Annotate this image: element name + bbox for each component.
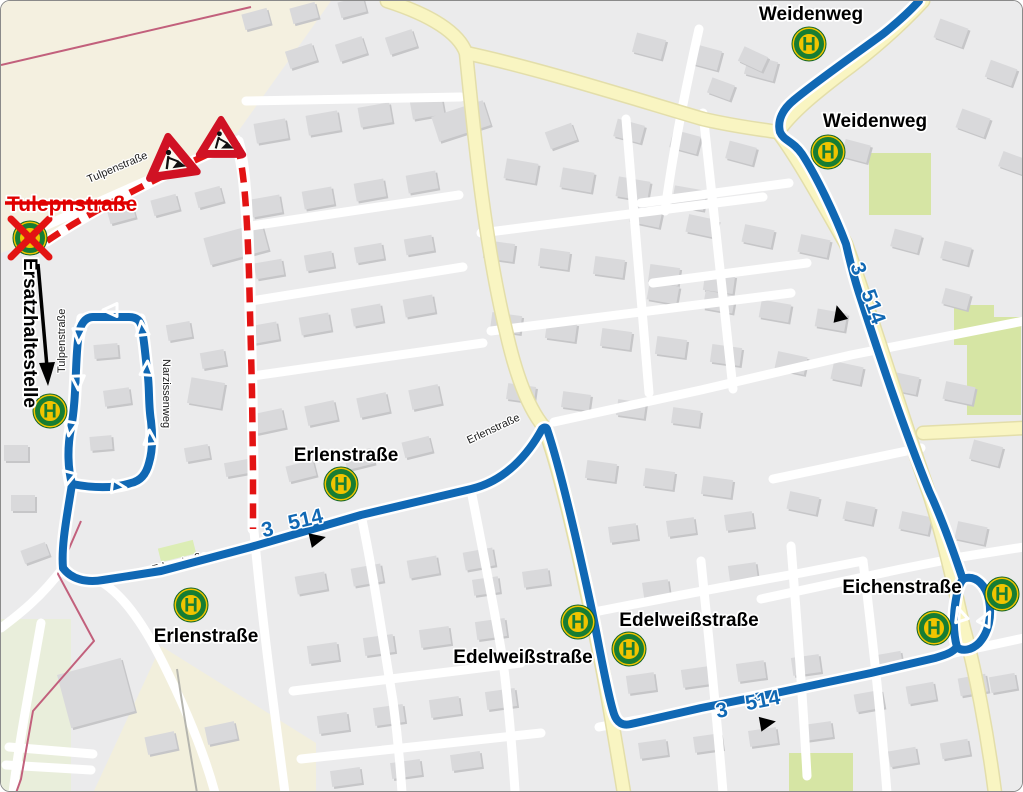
building — [89, 435, 112, 451]
stop-sign-letter: H — [927, 619, 941, 640]
stop-weidenweg-south: H — [811, 135, 845, 169]
stop-sign-letter: H — [821, 143, 835, 164]
stop-sign-letter: H — [571, 613, 585, 634]
stop-sign-letter: H — [802, 35, 816, 56]
stop-label-weidenweg-north: Weidenweg — [759, 4, 863, 25]
diversion-map: Tulpenstraße Tulpenstraße Narzissenweg E… — [0, 0, 1023, 792]
street-label-narzissenweg: Narzissenweg — [160, 359, 172, 428]
stop-cancelled-tulpenstrasse: H — [11, 219, 49, 257]
stop-sign-letter: H — [184, 596, 198, 617]
stop-sign-letter: H — [43, 402, 57, 423]
stop-erlenstrasse-west: H — [174, 588, 208, 622]
stop-sign-letter: H — [334, 475, 348, 496]
stop-weidenweg-north: H — [792, 27, 826, 61]
stop-eichenstrasse-west: H — [917, 611, 951, 645]
stop-label-weidenweg-south: Weidenweg — [823, 111, 927, 132]
stop-label-edelweissstrasse-east: Edelweißstraße — [619, 610, 758, 631]
stop-label-erlenstrasse-west: Erlenstraße — [154, 626, 259, 647]
closed-street-callout: Tulepnstraße — [5, 193, 137, 216]
stop-edelweissstrasse-east: H — [612, 632, 646, 666]
stop-edelweissstrasse-west: H — [561, 605, 595, 639]
stop-sign-letter: H — [995, 585, 1009, 606]
map-canvas: Tulpenstraße Tulpenstraße Narzissenweg E… — [1, 1, 1023, 792]
stop-sign-letter: H — [622, 640, 636, 661]
stop-erlenstrasse-east: H — [324, 467, 358, 501]
stop-eichenstrasse-east: H — [985, 577, 1019, 611]
building — [93, 343, 118, 359]
stop-label-eichenstrasse: Eichenstraße — [842, 577, 961, 598]
street-label-tulpenstrasse-vertical: Tulpenstraße — [56, 309, 68, 373]
replacement-stop-label: Ersatzhaltestelle — [19, 258, 40, 408]
stop-label-edelweissstrasse-west: Edelweißstraße — [453, 647, 592, 668]
building — [4, 445, 28, 461]
stop-label-erlenstrasse-east: Erlenstraße — [294, 445, 399, 466]
building — [11, 495, 35, 511]
